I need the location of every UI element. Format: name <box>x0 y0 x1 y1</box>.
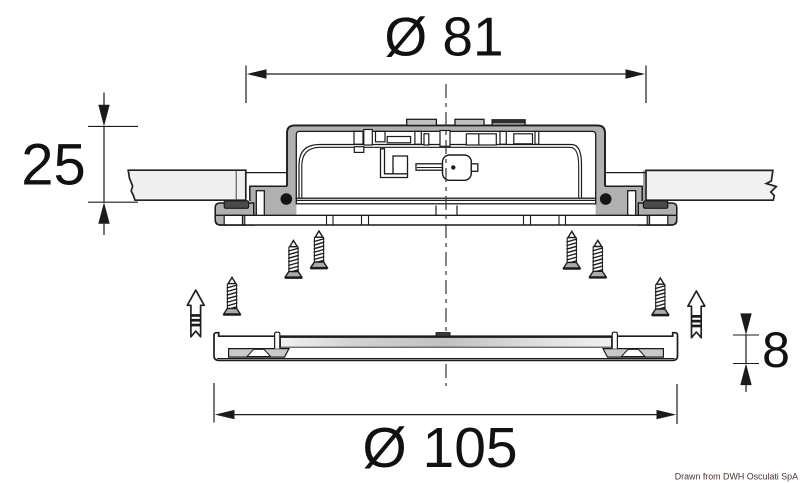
svg-text:Ø 105: Ø 105 <box>362 416 517 480</box>
svg-text:25: 25 <box>21 133 86 198</box>
svg-text:Drawn from DWH Osculati SpA: Drawn from DWH Osculati SpA <box>675 472 798 482</box>
svg-text:Ø 81: Ø 81 <box>384 6 503 68</box>
svg-text:8: 8 <box>762 322 790 378</box>
